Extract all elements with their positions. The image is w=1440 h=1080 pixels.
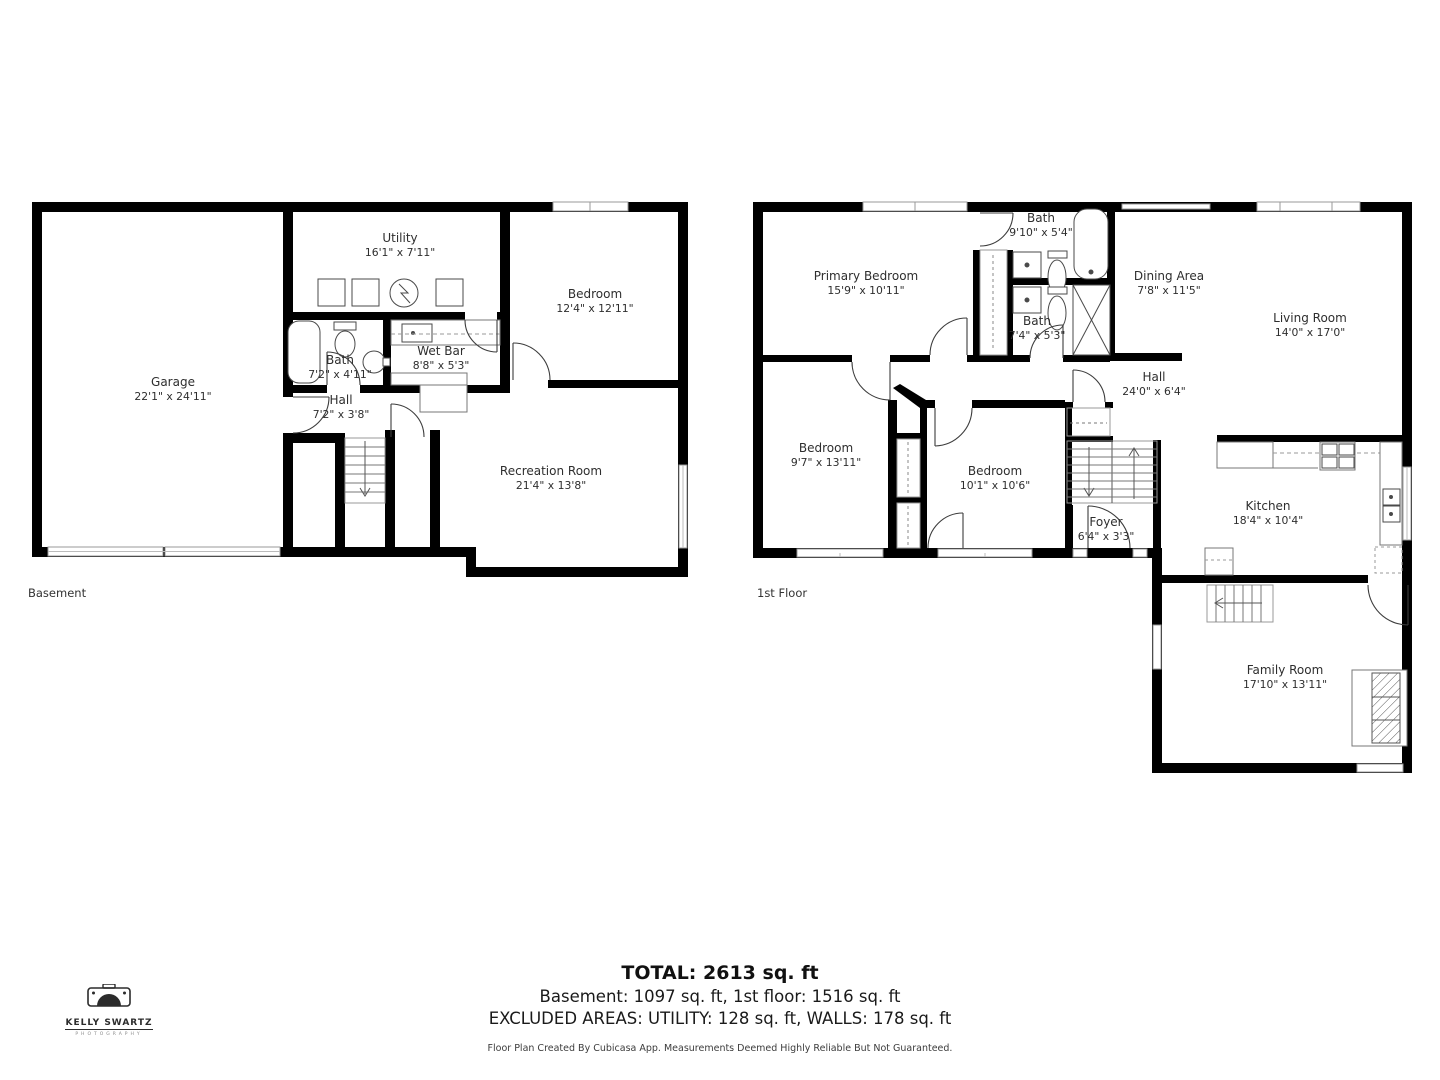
room-label-primary-bedroom: Primary Bedroom15'9" x 10'11" — [814, 269, 918, 297]
room-label-hall: Hall24'0" x 6'4" — [1122, 370, 1185, 398]
toilet-icon — [1048, 287, 1067, 294]
counter-icon — [1217, 442, 1273, 468]
room-label-basement-bath: Bath7'2" x 4'11" — [308, 353, 371, 381]
room-label-recreation-room: Recreation Room21'4" x 13'8" — [500, 464, 602, 492]
logo-title: KELLY SWARTZ — [65, 1018, 152, 1030]
room-label-basement-hall: Hall7'2" x 3'8" — [313, 393, 370, 421]
floor-plan-page: { "basement": { "floor_label": "Basement… — [0, 0, 1440, 1080]
basement-walls — [32, 202, 688, 577]
bar-counter-icon — [420, 385, 467, 412]
counter-icon — [1205, 548, 1233, 575]
room-label-garage: Garage22'1" x 24'11" — [134, 375, 211, 403]
logo-subtitle: PHOTOGRAPHY — [50, 1032, 168, 1037]
floor-areas-text: Basement: 1097 sq. ft, 1st floor: 1516 s… — [0, 986, 1440, 1008]
room-label-bedroom-2: Bedroom9'7" x 13'11" — [791, 441, 861, 469]
first-floor-label: 1st Floor — [757, 586, 807, 600]
bathtub-icon — [1074, 209, 1108, 279]
total-area-text: TOTAL: 2613 sq. ft — [0, 962, 1440, 986]
room-label-bath-2: Bath7'4" x 5'3" — [1009, 314, 1066, 342]
camera-icon — [87, 984, 131, 1010]
room-label-bath-1: Bath9'10" x 5'4" — [1009, 211, 1072, 239]
room-label-wet-bar: Wet Bar8'8" x 5'3" — [413, 344, 470, 372]
bar-sink-icon — [402, 324, 432, 342]
excluded-areas-text: EXCLUDED AREAS: UTILITY: 128 sq. ft, WAL… — [0, 1008, 1440, 1030]
room-label-bedroom-3: Bedroom10'1" x 10'6" — [960, 464, 1030, 492]
room-label-utility: Utility16'1" x 7'11" — [365, 231, 435, 259]
railing-opening — [1122, 204, 1210, 209]
room-label-basement-bedroom: Bedroom12'4" x 12'11" — [556, 287, 633, 315]
toilet-icon — [1048, 251, 1067, 258]
room-label-dining-area: Dining Area7'8" x 11'5" — [1134, 269, 1204, 297]
basement-floor-label: Basement — [28, 586, 86, 600]
room-label-family-room: Family Room17'10" x 13'11" — [1243, 663, 1327, 691]
basement-stairs-icon — [345, 438, 385, 503]
photographer-logo: KELLY SWARTZ PHOTOGRAPHY — [50, 984, 168, 1037]
area-summary: TOTAL: 2613 sq. ft Basement: 1097 sq. ft… — [0, 962, 1440, 1054]
first-floor-doors — [852, 213, 1408, 625]
room-label-living-room: Living Room14'0" x 17'0" — [1273, 311, 1347, 339]
room-label-foyer: Foyer6'4" x 3'3" — [1078, 515, 1135, 543]
disclaimer-text: Floor Plan Created By Cubicasa App. Meas… — [0, 1043, 1440, 1054]
toilet-icon — [334, 322, 356, 330]
floor-plan-drawing — [0, 0, 1440, 1080]
appliance-icon — [436, 279, 463, 306]
bar-counter-icon — [391, 373, 467, 385]
appliance-icon — [352, 279, 379, 306]
basement-plan — [32, 202, 688, 577]
room-label-kitchen: Kitchen18'4" x 10'4" — [1233, 499, 1303, 527]
appliance-icon — [318, 279, 345, 306]
